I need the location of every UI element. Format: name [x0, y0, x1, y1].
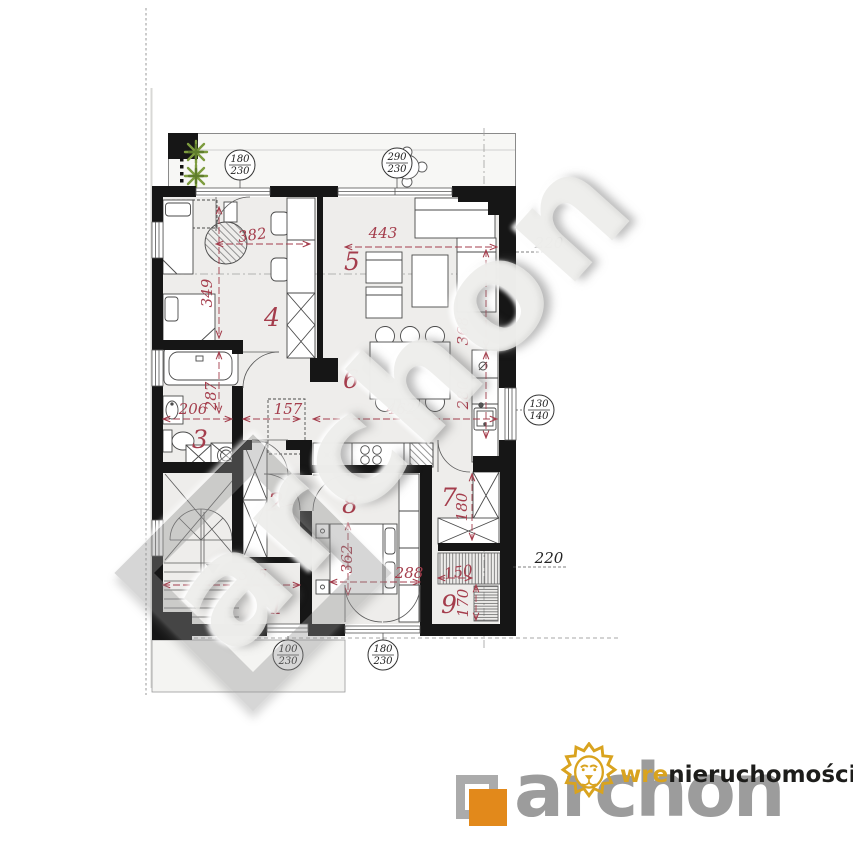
floor-plan-page: 382 443 349 287 206 157 462 368 280 375 …	[0, 0, 853, 853]
svg-text:230: 230	[277, 656, 298, 667]
closet2-wardrobes	[243, 442, 267, 558]
dim-288: 288	[394, 564, 424, 582]
kitchen-counter-bottom	[313, 443, 433, 467]
dim-280: 280	[454, 380, 472, 410]
armchair	[366, 287, 402, 318]
svg-text:130: 130	[529, 399, 549, 410]
svg-text:180: 180	[230, 154, 250, 165]
room-5: 5	[344, 247, 360, 276]
svg-text:230: 230	[386, 164, 407, 175]
room-4: 4	[263, 303, 280, 332]
room-7: 7	[441, 483, 457, 512]
dim-362: 362	[338, 545, 356, 574]
svg-text:230: 230	[229, 166, 250, 177]
archon-logo-square-orange	[469, 789, 507, 826]
wre-rest: nieruchomości	[668, 762, 853, 788]
desk-chair	[271, 258, 289, 281]
dim-368: 368	[454, 317, 472, 346]
level-220-top: 220	[534, 234, 564, 252]
dining-table	[370, 342, 450, 399]
window-tag-130-140: 130 140	[516, 395, 554, 425]
room-9: 9	[441, 590, 457, 619]
svg-text:100: 100	[278, 644, 298, 655]
wre-bold: wre	[620, 762, 668, 788]
wre-lion-icon	[560, 742, 618, 802]
dim-443: 443	[368, 224, 398, 242]
dim-349: 349	[198, 278, 216, 307]
room-3: 3	[192, 425, 208, 454]
wre-logo-text: wrenieruchomości	[620, 762, 853, 788]
armchair	[366, 252, 402, 283]
desk-chair	[271, 212, 289, 235]
sink-symbol	[322, 450, 332, 460]
terrace-top	[168, 133, 516, 190]
window-tag-180-230-b: 180 230	[368, 633, 398, 670]
dim-157: 157	[274, 400, 303, 418]
svg-text:290: 290	[386, 152, 407, 163]
floor-plan-canvas: 382 443 349 287 206 157 462 368 280 375 …	[0, 0, 853, 853]
stairs-down	[474, 586, 498, 621]
nightstand	[316, 580, 329, 594]
svg-text:180: 180	[373, 644, 393, 655]
level-220-bottom: 220	[534, 549, 564, 567]
toilet	[163, 430, 172, 452]
property-boundary	[146, 8, 152, 695]
fridge	[410, 443, 433, 467]
plant-icon	[185, 165, 207, 187]
svg-text:140: 140	[529, 411, 549, 422]
room-1: 1	[269, 591, 285, 620]
plant-icon	[185, 141, 207, 163]
room-6: 6	[343, 365, 359, 394]
dim-375: 375	[239, 566, 268, 584]
kitchen-counter-right	[472, 350, 498, 462]
dim-462: 462	[386, 400, 416, 418]
room-8: 8	[342, 490, 358, 519]
dim-206: 206	[178, 400, 208, 418]
svg-text:230: 230	[372, 656, 393, 667]
wardrobe-cabinet	[287, 198, 315, 358]
dining-furniture	[370, 327, 450, 412]
coffee-table	[412, 255, 448, 307]
nightstand	[316, 524, 329, 538]
sofa	[415, 198, 495, 238]
room-2: 2	[267, 488, 284, 517]
